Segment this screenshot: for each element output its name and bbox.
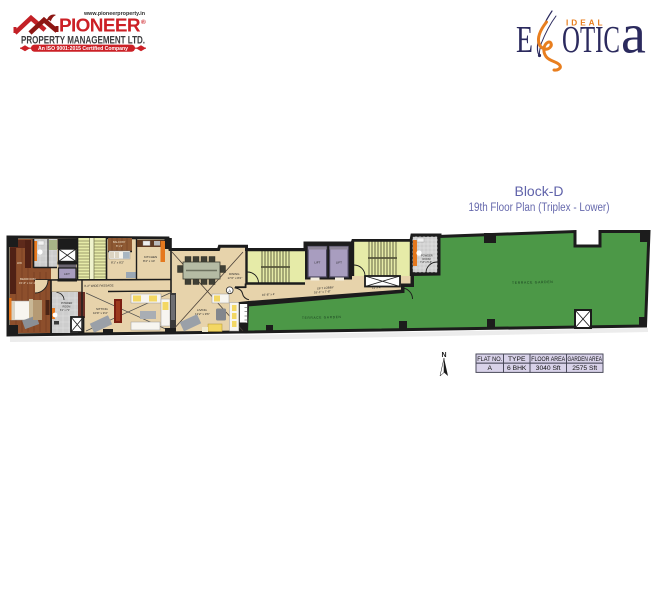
svg-text:8'2" x 7'4": 8'2" x 7'4" (60, 310, 70, 312)
svg-text:LIFT: LIFT (64, 272, 70, 276)
svg-text:10'9" x 9'4": 10'9" x 9'4" (93, 311, 108, 315)
svg-text:15'-6" x 11'-1": 15'-6" x 11'-1" (19, 281, 36, 285)
svg-text:8' x 5': 8' x 5' (116, 244, 123, 248)
svg-text:GARDEN AREA: GARDEN AREA (567, 356, 602, 363)
svg-text:E: E (516, 19, 533, 61)
svg-text:BALCONY: BALCONY (113, 240, 126, 244)
svg-text:LIFT: LIFT (314, 261, 320, 265)
svg-text:N: N (441, 352, 446, 359)
svg-text:Block-D: Block-D (514, 183, 563, 199)
svg-text:19th Floor Plan (Triplex - Low: 19th Floor Plan (Triplex - Lower) (469, 202, 610, 214)
svg-text:ROOM: ROOM (63, 306, 71, 309)
svg-text:An ISO 9001:2015 Certified Com: An ISO 9001:2015 Certified Company (38, 46, 128, 52)
svg-text:LIFT: LIFT (336, 261, 342, 265)
svg-text:W/D: W/D (17, 261, 22, 265)
svg-text:FLOOR AREA: FLOOR AREA (531, 356, 565, 363)
svg-text:A: A (228, 288, 231, 293)
svg-text:ROOM: ROOM (423, 257, 431, 261)
svg-text:FLAT NO.: FLAT NO. (477, 356, 502, 363)
svg-text:TYPE: TYPE (508, 356, 526, 363)
svg-text:A: A (487, 365, 492, 372)
svg-text:®: ® (141, 18, 146, 26)
svg-text:17'2" x 8'2": 17'2" x 8'2" (228, 276, 243, 280)
svg-text:2575 Sft: 2575 Sft (572, 365, 597, 372)
svg-text:a: a (621, 4, 646, 66)
svg-text:8'1" x 8'2": 8'1" x 8'2" (111, 261, 124, 265)
svg-text:6 BHK: 6 BHK (507, 365, 527, 372)
svg-text:11' x 4': 11' x 4' (372, 285, 382, 290)
svg-text:8'4" x 10': 8'4" x 10' (143, 259, 155, 263)
svg-text:PIONEER: PIONEER (59, 15, 140, 36)
svg-text:3040 Sft: 3040 Sft (536, 365, 561, 372)
svg-text:OTIC: OTIC (562, 19, 620, 61)
svg-text:3'-2" WIDE PASSAGE: 3'-2" WIDE PASSAGE (84, 283, 114, 288)
